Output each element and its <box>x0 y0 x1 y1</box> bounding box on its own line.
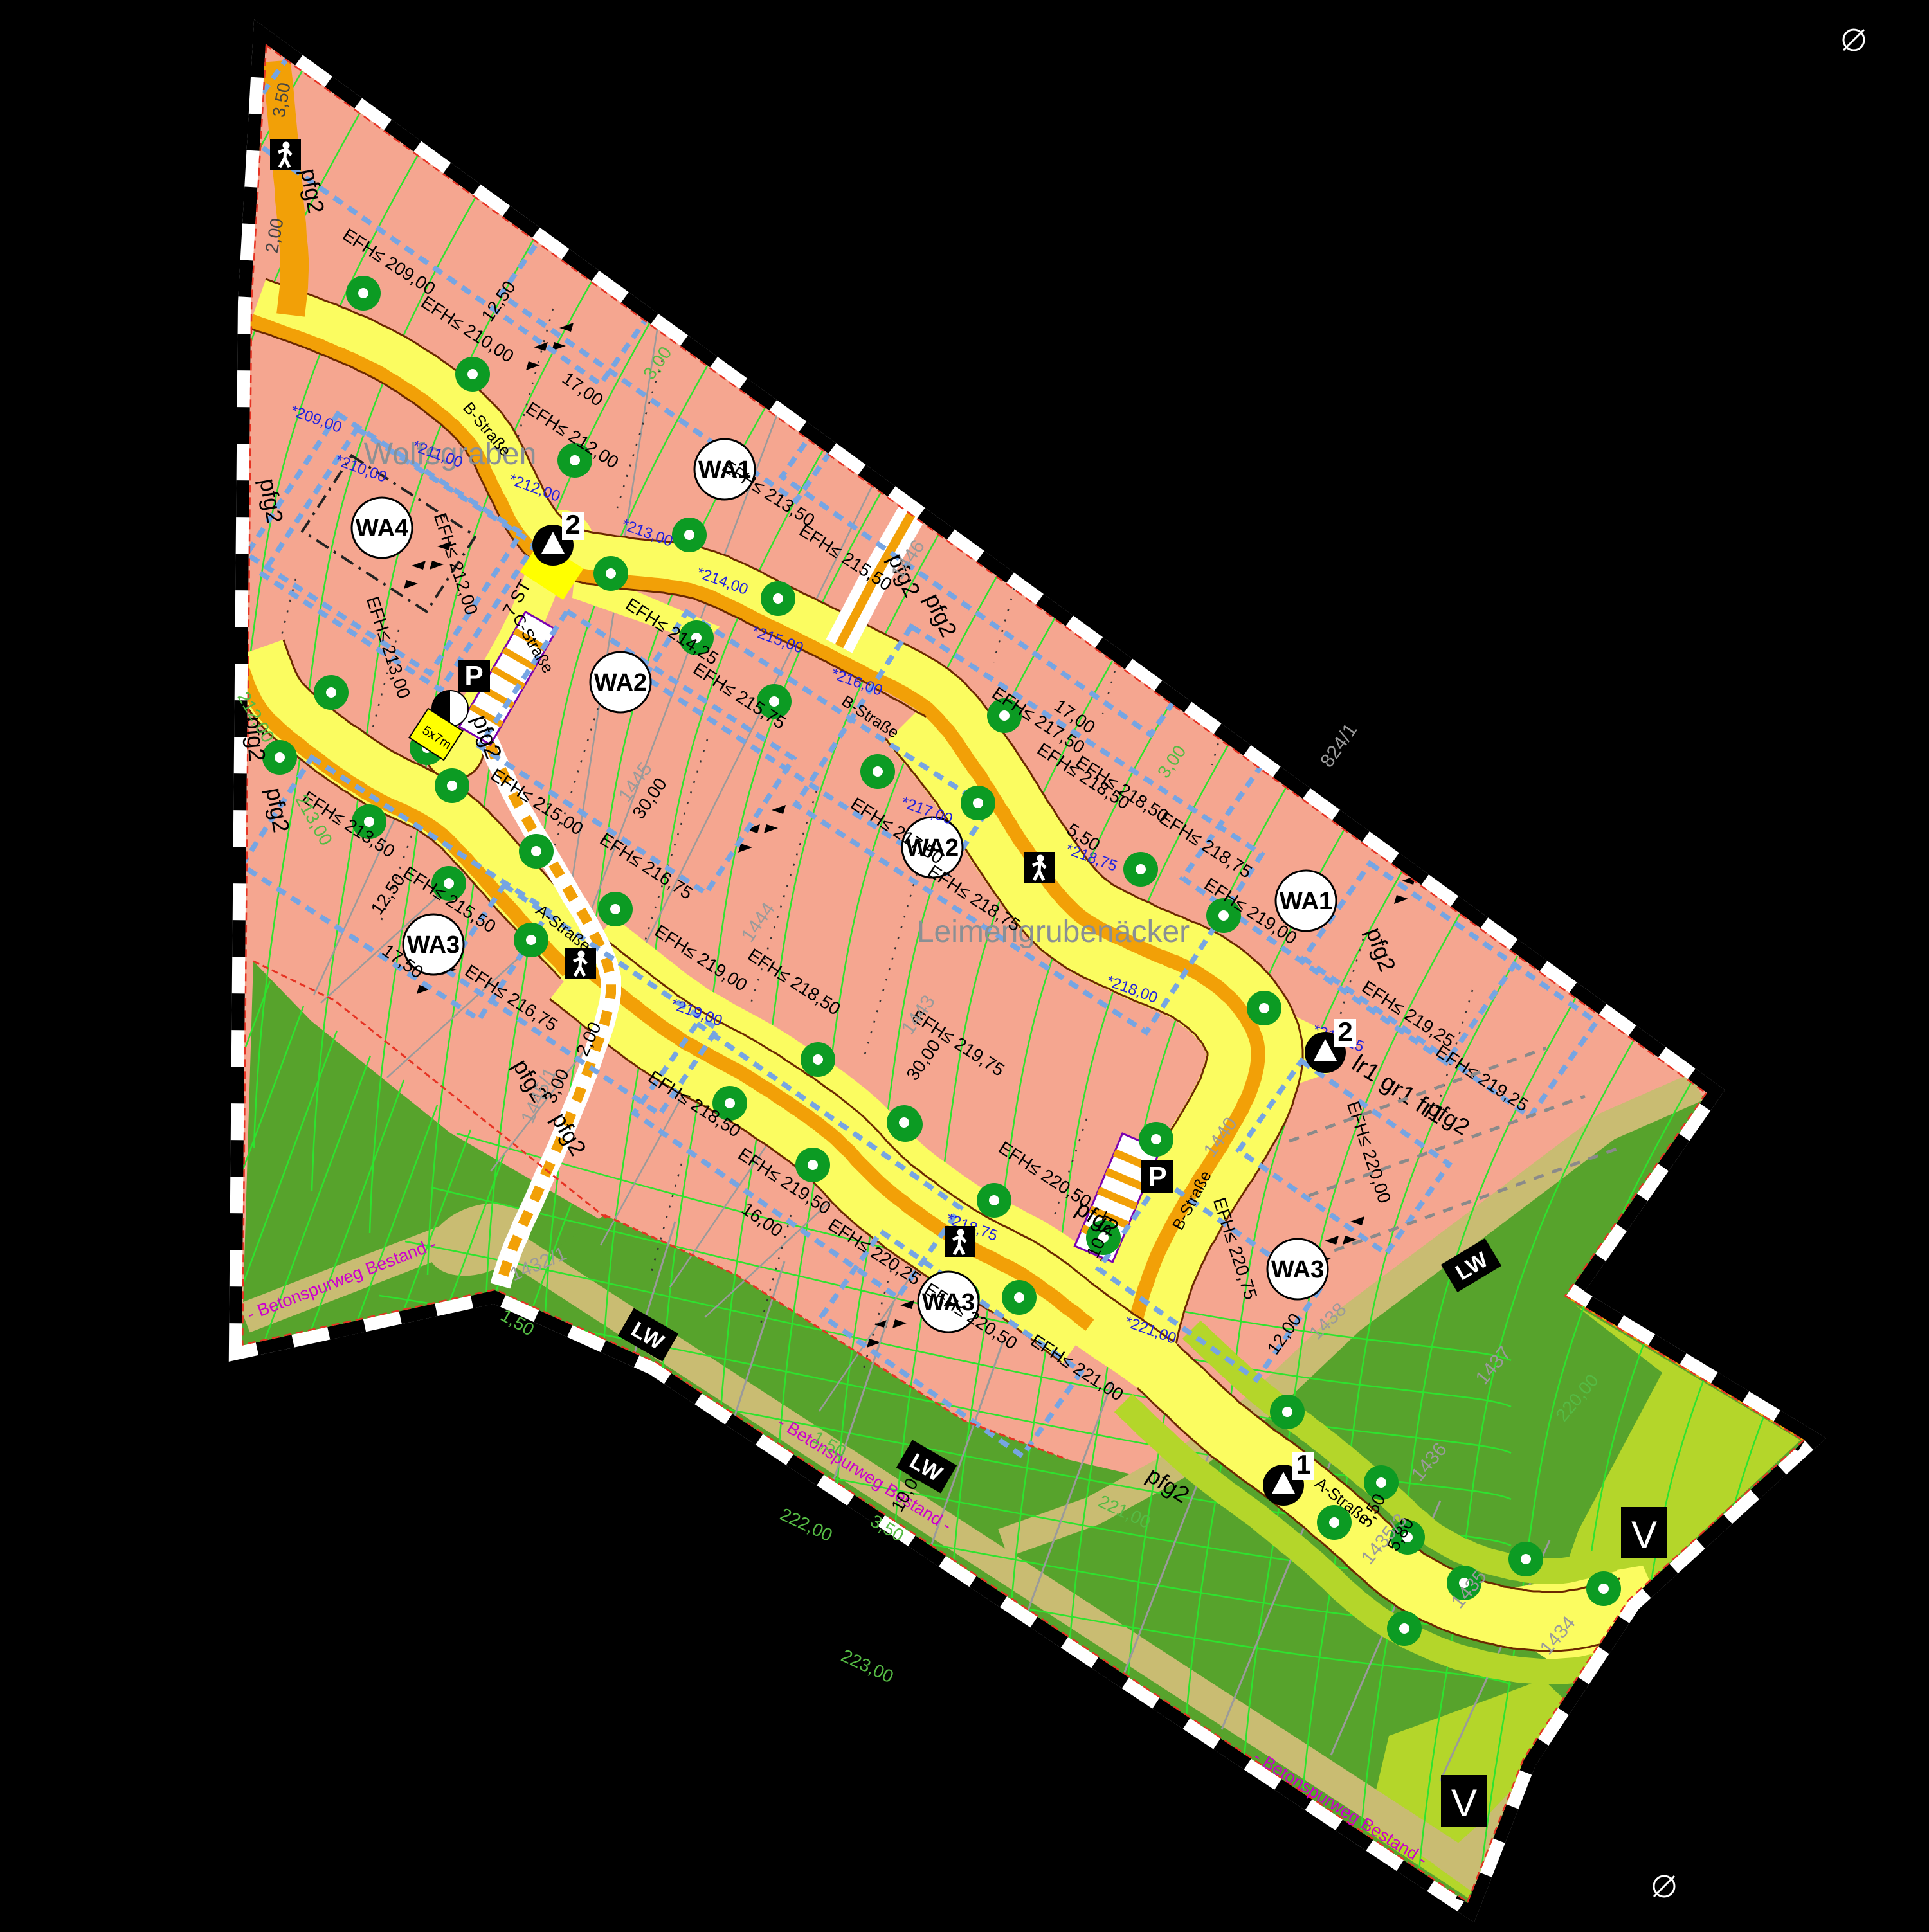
svg-text:P: P <box>464 660 483 692</box>
svg-text:WA2: WA2 <box>594 669 647 696</box>
svg-text:WA1: WA1 <box>1280 888 1332 915</box>
svg-text:2: 2 <box>1337 1016 1352 1047</box>
svg-text:Leimengrubenäcker: Leimengrubenäcker <box>917 915 1190 949</box>
svg-text:WA3: WA3 <box>1271 1256 1324 1283</box>
svg-text:V: V <box>1631 1513 1657 1557</box>
svg-text:P: P <box>1148 1161 1166 1193</box>
svg-text:WA3: WA3 <box>407 932 460 959</box>
svg-text:1: 1 <box>1296 1449 1310 1479</box>
svg-text:WA4: WA4 <box>356 515 408 542</box>
svg-text:2: 2 <box>565 509 580 539</box>
svg-text:V: V <box>1451 1782 1477 1825</box>
